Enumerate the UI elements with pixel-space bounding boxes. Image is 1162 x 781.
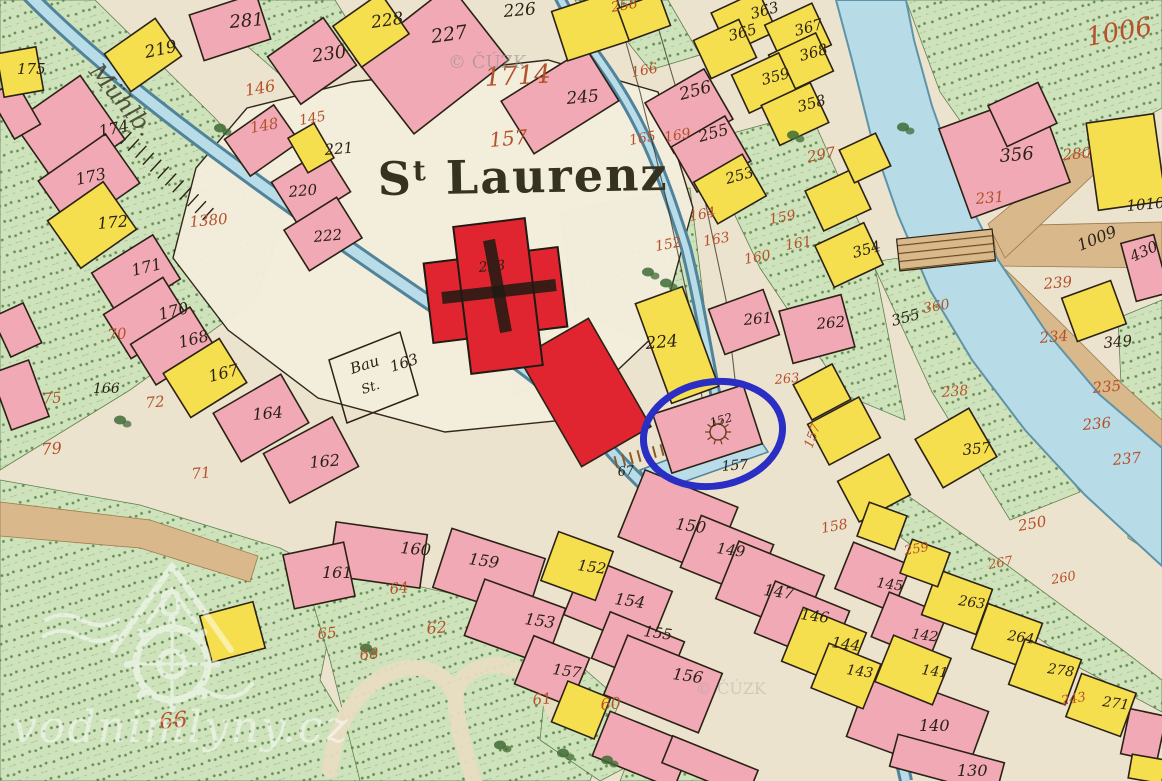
parcel-number: 164 bbox=[252, 402, 284, 424]
tree-icon bbox=[223, 129, 232, 136]
tree-icon bbox=[123, 421, 132, 428]
parcel-number: 235 bbox=[1091, 377, 1122, 398]
parcel-number: 175 bbox=[17, 60, 46, 78]
parcel-number: 72 bbox=[145, 392, 166, 412]
parcel-number: 236 bbox=[1081, 414, 1113, 435]
parcel-number: 234 bbox=[1038, 327, 1069, 348]
parcel-number: 239 bbox=[1042, 273, 1074, 294]
parcel-number: 60 bbox=[600, 693, 622, 714]
parcel-number: 61 bbox=[532, 689, 553, 709]
parcel-number: 357 bbox=[962, 439, 993, 459]
parcel-number: 261 bbox=[742, 309, 773, 330]
map-viewport[interactable]: 2812192302282272262451751741731721711701… bbox=[0, 0, 1162, 781]
watermark-site-text: vodnimlyny.cz bbox=[12, 702, 350, 753]
parcel-number: 157 bbox=[488, 125, 528, 152]
parcel-number: 222 bbox=[312, 226, 343, 247]
parcel-number: 220 bbox=[287, 181, 319, 202]
parcel-number: 226 bbox=[502, 0, 537, 22]
parcel-number: 172 bbox=[97, 211, 129, 233]
parcel-number: 64 bbox=[389, 578, 410, 598]
parcel-number: 161 bbox=[322, 563, 353, 582]
cuzk-watermark: © ČÚZK bbox=[448, 50, 527, 73]
tree-icon bbox=[566, 754, 575, 761]
parcel-number: 263 bbox=[773, 371, 800, 388]
tree-icon bbox=[503, 746, 512, 753]
map-canvas[interactable]: 2812192302282272262451751741731721711701… bbox=[0, 0, 1162, 781]
parcel-number: 162 bbox=[309, 450, 341, 472]
parcel-number: 237 bbox=[1111, 449, 1143, 470]
parcel-number: 231 bbox=[974, 188, 1005, 209]
parcel-number: 75 bbox=[42, 388, 63, 408]
parcel-number: 157 bbox=[721, 457, 749, 475]
parcel-number: 166 bbox=[93, 381, 120, 397]
parcel-number: 1380 bbox=[189, 210, 229, 231]
parcel-number: 130 bbox=[957, 761, 988, 780]
parcel-number: 223 bbox=[477, 258, 506, 276]
parcel-number: 71 bbox=[191, 463, 212, 483]
parcel-number: 67 bbox=[617, 464, 636, 480]
parcel-number: 79 bbox=[41, 438, 63, 459]
parcel-number: 160 bbox=[400, 538, 432, 560]
tree-icon bbox=[906, 128, 915, 135]
parcel-number: 281 bbox=[228, 9, 265, 33]
parcel-number: 68 bbox=[359, 644, 380, 664]
parcel-number: 262 bbox=[815, 313, 846, 334]
parcel-number: 356 bbox=[999, 143, 1035, 167]
parcel-number: 62 bbox=[426, 617, 448, 638]
parcel-number: 221 bbox=[323, 139, 354, 160]
parcel-number: 238 bbox=[940, 383, 969, 401]
parcel-number: 280 bbox=[1061, 144, 1093, 165]
parcel-number: 1010 bbox=[1126, 194, 1162, 215]
tree-icon bbox=[651, 273, 660, 280]
building bbox=[1128, 754, 1162, 781]
parcel-number: 70 bbox=[107, 324, 128, 344]
parcel-number: 65 bbox=[317, 623, 338, 643]
parcel-number: 224 bbox=[644, 331, 679, 354]
parcel-number: 349 bbox=[1103, 332, 1134, 352]
tree-icon bbox=[796, 136, 805, 143]
parcel-number: 245 bbox=[565, 86, 600, 109]
parcel-number: 140 bbox=[919, 716, 950, 735]
cuzk-watermark: © ČÚZK bbox=[696, 678, 767, 698]
tree-icon bbox=[669, 284, 678, 291]
tree-icon bbox=[610, 761, 619, 768]
